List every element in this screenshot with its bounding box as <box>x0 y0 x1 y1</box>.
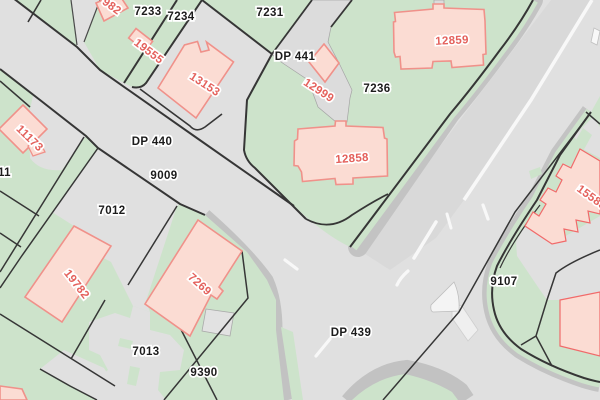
svg-text:7012: 7012 <box>98 205 125 217</box>
svg-text:DP 440: DP 440 <box>132 136 173 148</box>
svg-text:7233: 7233 <box>134 6 161 18</box>
svg-text:9390: 9390 <box>190 367 217 379</box>
svg-text:9107: 9107 <box>490 276 517 288</box>
svg-text:7013: 7013 <box>132 346 159 358</box>
svg-text:DP 439: DP 439 <box>331 327 372 339</box>
svg-text:DP 441: DP 441 <box>275 51 316 63</box>
svg-text:7234: 7234 <box>167 11 194 23</box>
svg-text:7231: 7231 <box>256 7 283 19</box>
svg-text:9009: 9009 <box>150 170 177 182</box>
svg-text:12859: 12859 <box>435 34 469 48</box>
svg-text:11: 11 <box>0 167 11 179</box>
svg-text:7236: 7236 <box>363 83 390 95</box>
svg-text:12858: 12858 <box>335 152 370 166</box>
